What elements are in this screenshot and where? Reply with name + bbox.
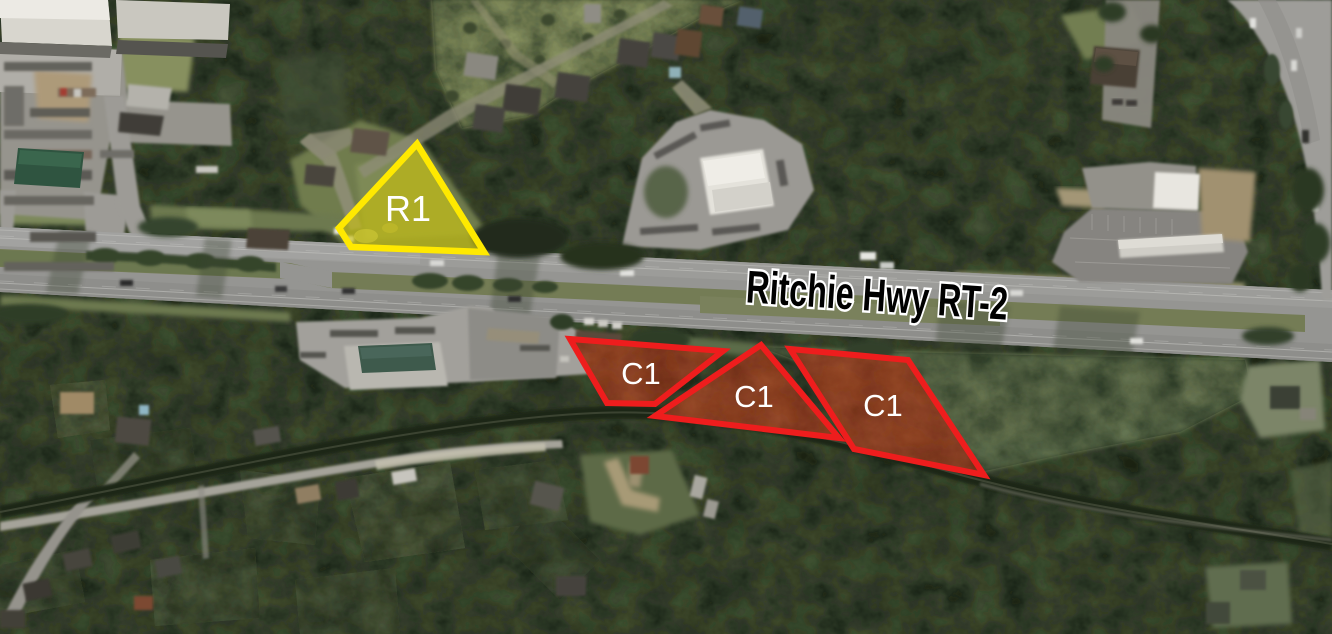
svg-text:C1: C1	[863, 388, 903, 423]
svg-text:C1: C1	[621, 356, 661, 391]
svg-text:R1: R1	[385, 188, 431, 229]
svg-text:C1: C1	[734, 379, 774, 414]
